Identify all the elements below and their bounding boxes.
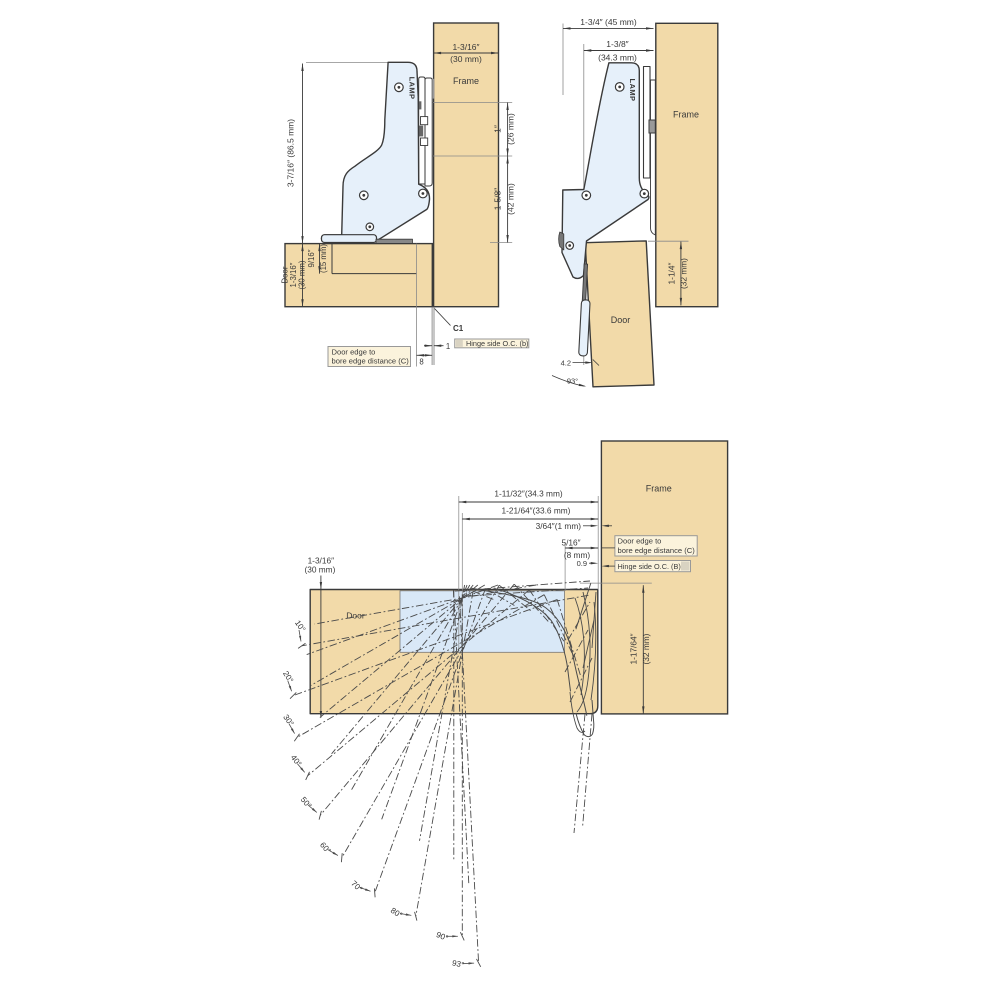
svg-text:(26 mm): (26 mm) xyxy=(506,113,516,145)
svg-text:bore edge distance (C): bore edge distance (C) xyxy=(618,546,696,555)
svg-text:(30 mm): (30 mm) xyxy=(450,54,482,64)
svg-text:Frame: Frame xyxy=(673,110,699,120)
svg-text:1″: 1″ xyxy=(493,125,503,133)
svg-text:Door edge to: Door edge to xyxy=(332,347,376,356)
svg-text:1-3/16″: 1-3/16″ xyxy=(452,42,479,52)
svg-text:LAMP: LAMP xyxy=(407,77,416,100)
svg-text:(32 mm): (32 mm) xyxy=(641,633,651,664)
svg-text:9/16″: 9/16″ xyxy=(307,249,316,267)
svg-text:(34.3 mm): (34.3 mm) xyxy=(598,53,637,63)
svg-text:LAMP: LAMP xyxy=(628,79,637,102)
svg-text:1: 1 xyxy=(446,342,450,351)
svg-text:5/16″: 5/16″ xyxy=(561,537,580,547)
svg-text:(30 mm): (30 mm) xyxy=(298,260,307,289)
svg-text:8: 8 xyxy=(419,358,423,367)
svg-text:Hinge side O.C. (b): Hinge side O.C. (b) xyxy=(466,339,528,348)
svg-text:1-3/8″: 1-3/8″ xyxy=(606,39,628,49)
svg-text:1-5/8″: 1-5/8″ xyxy=(493,188,503,210)
svg-text:0.9: 0.9 xyxy=(577,559,587,568)
svg-text:(32 mm): (32 mm) xyxy=(679,258,689,289)
svg-text:Door edge to: Door edge to xyxy=(618,537,662,546)
svg-text:Frame: Frame xyxy=(646,484,672,494)
svg-text:(30 mm): (30 mm) xyxy=(304,565,335,575)
svg-text:4.2: 4.2 xyxy=(561,358,571,367)
svg-text:Frame: Frame xyxy=(453,76,479,86)
svg-text:(42 mm): (42 mm) xyxy=(506,183,516,215)
svg-text:Hinge side O.C. (B): Hinge side O.C. (B) xyxy=(618,562,681,571)
svg-text:1-1/4″: 1-1/4″ xyxy=(667,263,677,285)
svg-text:Door: Door xyxy=(611,315,631,325)
svg-text:1-21/64″(33.6 mm): 1-21/64″(33.6 mm) xyxy=(502,506,571,516)
svg-text:3-7/16″ (86.5 mm): 3-7/16″ (86.5 mm) xyxy=(286,119,296,187)
svg-text:1-17/64″: 1-17/64″ xyxy=(629,633,639,664)
svg-text:3/64″(1 mm): 3/64″(1 mm) xyxy=(536,521,582,531)
svg-text:1-11/32″(34.3 mm): 1-11/32″(34.3 mm) xyxy=(494,489,562,499)
svg-text:C1: C1 xyxy=(453,324,464,333)
svg-text:1-3/4″ (45 mm): 1-3/4″ (45 mm) xyxy=(580,17,637,27)
svg-text:(15 mm): (15 mm) xyxy=(319,244,328,273)
svg-text:bore edge distance (C): bore edge distance (C) xyxy=(332,356,410,365)
